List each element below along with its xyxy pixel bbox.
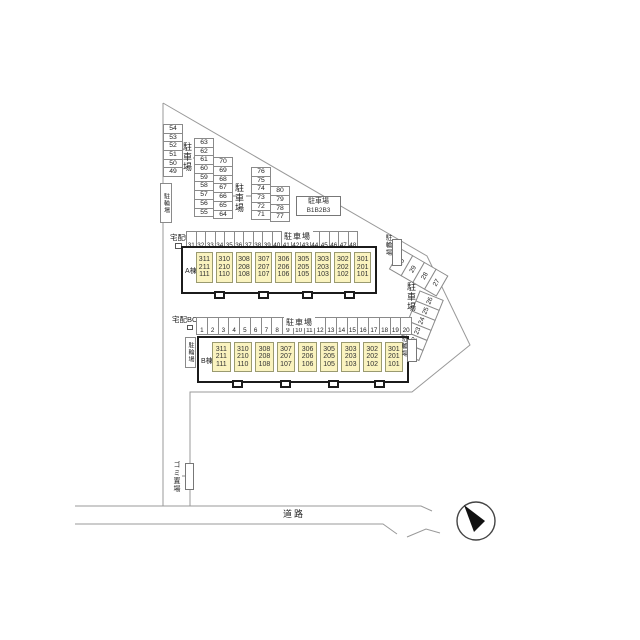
- room-number: 107: [280, 361, 292, 369]
- parking-row-b-label: 駐車場: [284, 317, 315, 328]
- room-number: 106: [278, 271, 290, 279]
- parking-space: 2: [207, 318, 218, 334]
- room-number: 305: [323, 346, 335, 354]
- room-number: 106: [302, 361, 314, 369]
- room-number: 303: [317, 256, 329, 264]
- room-number: 210: [237, 353, 249, 361]
- bicycle-parking-box-upper-left: 駐輪場: [160, 183, 172, 223]
- parking-space: 77: [270, 212, 290, 222]
- room-number: 102: [337, 271, 349, 279]
- entrance-notch: [214, 291, 225, 299]
- entrance-notch: [302, 291, 313, 299]
- unit-column: 311211111: [212, 342, 231, 372]
- room-number: 307: [258, 256, 270, 264]
- building-b-units: 3112111113102101103082081083072071073062…: [212, 342, 403, 372]
- room-number: 110: [237, 361, 248, 369]
- unit-column: 301201101: [354, 252, 371, 283]
- building-b: B棟 3112111113102101103082081083072071073…: [197, 336, 409, 383]
- delivery-box-icon-b: [187, 325, 193, 330]
- room-number: 107: [258, 271, 270, 279]
- room-number: 103: [345, 361, 357, 369]
- unit-column: 307207107: [277, 342, 296, 372]
- parking-space: 1: [197, 318, 207, 334]
- room-number: 211: [199, 264, 210, 272]
- room-number: 308: [259, 346, 271, 354]
- room-number: 207: [280, 353, 292, 361]
- room-number: 108: [238, 271, 250, 279]
- parking-column-77-80: 80797877: [270, 186, 290, 222]
- parking-column-49-54: 545352515049: [163, 124, 183, 177]
- entrance-notch: [328, 380, 339, 388]
- parking-column-55-63: 636261605958575655: [194, 138, 214, 217]
- room-number: 202: [337, 264, 349, 272]
- parking-area-label: 駐車場: [233, 183, 246, 213]
- parking-area-label-slant: 駐車場: [405, 282, 418, 312]
- building-a-units: 3112111113102101103082081083072071073062…: [196, 252, 371, 283]
- room-number: 308: [238, 256, 250, 264]
- building-a: A棟 3112111113102101103082081083072071073…: [181, 246, 377, 294]
- room-number: 301: [357, 256, 369, 264]
- room-number: 105: [323, 361, 335, 369]
- room-number: 310: [237, 346, 249, 354]
- room-number: 203: [345, 353, 357, 361]
- unit-column: 310210110: [234, 342, 253, 372]
- room-number: 205: [297, 264, 309, 272]
- road-bottom-edge: [75, 524, 397, 534]
- building-b-label: B棟: [201, 356, 213, 366]
- parking-space: 3: [218, 318, 229, 334]
- room-number: 311: [216, 346, 227, 354]
- parking-space: 8: [271, 318, 282, 334]
- parking-space: 18: [379, 318, 390, 334]
- room-number: 206: [278, 264, 290, 272]
- room-number: 203: [317, 264, 329, 272]
- bicycle-parking-box-b-right: [407, 339, 417, 362]
- parking-space: 12: [314, 318, 325, 334]
- parking-space: 7: [261, 318, 272, 334]
- room-number: 202: [366, 353, 378, 361]
- parking-column-64-70: 70696867666564: [213, 157, 233, 219]
- parking-row-a-label: 駐車場: [282, 231, 313, 242]
- unit-column: 307207107: [255, 252, 272, 283]
- room-number: 101: [388, 361, 400, 369]
- garbage-area-label: ゴミ置場: [171, 461, 181, 493]
- room-number: 211: [216, 353, 227, 361]
- parking-space: 4: [228, 318, 239, 334]
- parking-space: 16: [357, 318, 368, 334]
- room-number: 302: [366, 346, 378, 354]
- compact-parking-box: 駐車場 B1B2B3: [296, 196, 341, 216]
- room-number: 311: [199, 256, 210, 264]
- room-number: 111: [199, 271, 210, 279]
- compact-parking-numbers: B1B2B3: [297, 206, 340, 215]
- unit-column: 302202102: [334, 252, 351, 283]
- parking-space: 14: [336, 318, 347, 334]
- parking-space: 64: [213, 210, 233, 220]
- room-number: 201: [357, 264, 369, 272]
- parking-space: 19: [390, 318, 401, 334]
- unit-column: 303203103: [315, 252, 332, 283]
- parking-space: 13: [325, 318, 336, 334]
- room-number: 108: [259, 361, 271, 369]
- bicycle-parking-box-b-left: 駐輪場: [185, 337, 196, 368]
- parking-space: 49: [163, 167, 183, 177]
- room-number: 302: [337, 256, 349, 264]
- room-number: 208: [259, 353, 271, 361]
- room-number: 305: [297, 256, 309, 264]
- compass-icon: [457, 502, 495, 540]
- room-number: 111: [216, 361, 227, 369]
- parking-space: 55: [194, 208, 214, 218]
- room-number: 206: [302, 353, 314, 361]
- room-number: 307: [280, 346, 292, 354]
- entrance-notch: [344, 291, 355, 299]
- unit-column: 305205105: [320, 342, 339, 372]
- road-label: 道路: [283, 507, 305, 520]
- room-number: 110: [219, 271, 230, 279]
- room-number: 208: [238, 264, 250, 272]
- room-number: 306: [278, 256, 290, 264]
- room-number: 105: [297, 271, 309, 279]
- parking-area-label: 駐車場: [181, 142, 194, 172]
- unit-column: 303203103: [341, 342, 360, 372]
- room-number: 101: [357, 271, 369, 279]
- compact-parking-label: 駐車場: [297, 197, 340, 206]
- parking-space: 71: [251, 210, 271, 220]
- unit-column: 302202102: [363, 342, 382, 372]
- road-top-edge: [75, 506, 432, 511]
- parking-space: 20: [400, 318, 411, 334]
- unit-column: 310210110: [216, 252, 233, 283]
- unit-column: 311211111: [196, 252, 213, 283]
- road-edge-fragment: [407, 529, 440, 537]
- room-number: 303: [345, 346, 357, 354]
- parking-space: 15: [347, 318, 358, 334]
- building-a-label: A棟: [185, 266, 197, 276]
- room-number: 102: [366, 361, 378, 369]
- bicycle-parking-label-a-right: 駐輪場: [382, 234, 392, 257]
- room-number: 205: [323, 353, 335, 361]
- room-number: 210: [218, 264, 230, 272]
- parking-space: 6: [250, 318, 261, 334]
- unit-column: 308208108: [236, 252, 253, 283]
- room-number: 207: [258, 264, 270, 272]
- unit-column: 306206106: [298, 342, 317, 372]
- unit-column: 308208108: [255, 342, 274, 372]
- parking-space: 5: [239, 318, 250, 334]
- room-number: 306: [302, 346, 314, 354]
- unit-column: 306206106: [275, 252, 292, 283]
- entrance-notch: [258, 291, 269, 299]
- garbage-area-box: [185, 463, 194, 490]
- entrance-notch: [232, 380, 243, 388]
- parking-column-71-76: 767574737271: [251, 167, 271, 220]
- bicycle-parking-box-a-right: [392, 239, 402, 266]
- entrance-notch: [374, 380, 385, 388]
- parking-space: 17: [368, 318, 379, 334]
- room-number: 103: [317, 271, 329, 279]
- site-plan: 30292827 262524232221 545352515049 駐車場 駐…: [0, 0, 640, 640]
- unit-column: 305205105: [295, 252, 312, 283]
- entrance-notch: [280, 380, 291, 388]
- room-number: 310: [218, 256, 230, 264]
